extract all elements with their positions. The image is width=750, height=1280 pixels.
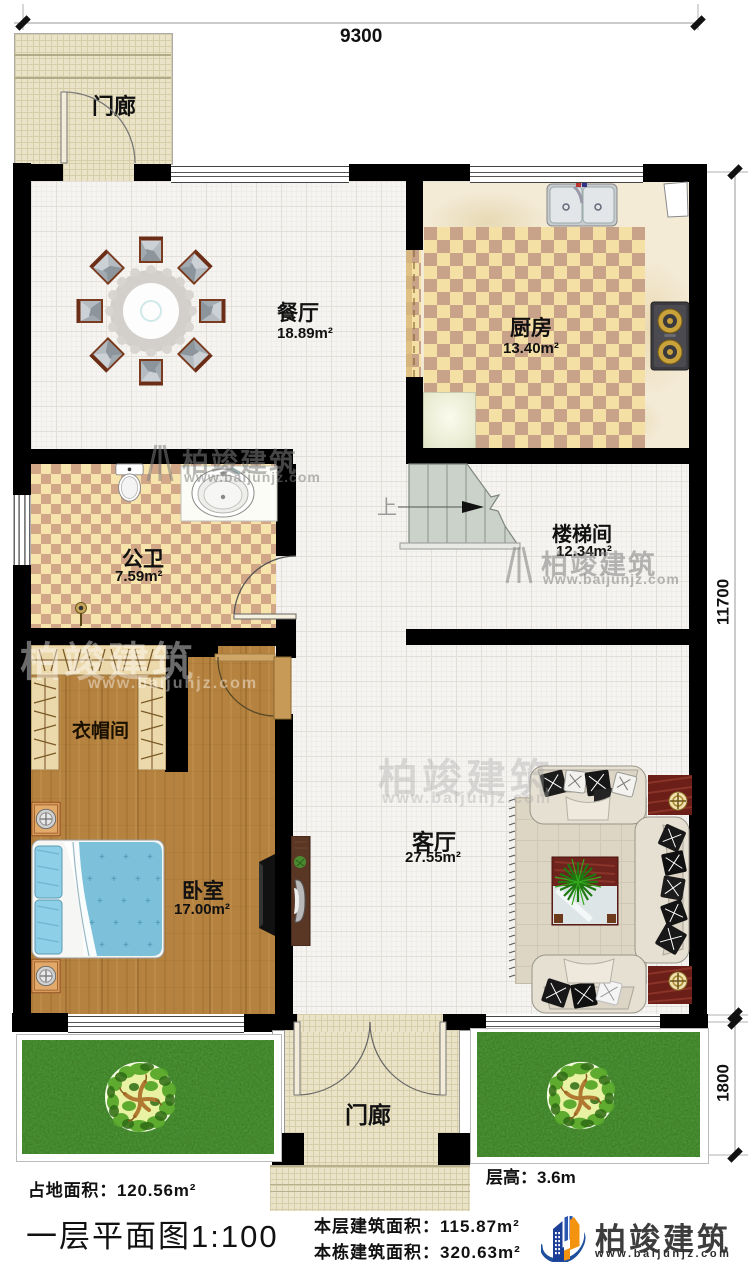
svg-text:1800: 1800	[714, 1064, 733, 1102]
svg-text:+: +	[135, 874, 141, 885]
svg-text:+: +	[147, 852, 153, 863]
svg-text:11700: 11700	[714, 579, 733, 625]
svg-text:上: 上	[377, 496, 397, 519]
svg-text:+: +	[147, 940, 153, 951]
svg-text:+: +	[121, 896, 127, 907]
svg-text:+: +	[155, 874, 161, 885]
svg-text:+: +	[89, 918, 95, 929]
svg-text:+: +	[137, 918, 143, 929]
svg-text:+: +	[111, 874, 117, 885]
svg-text:+: +	[99, 852, 105, 863]
svg-text:+: +	[87, 874, 93, 885]
svg-text:+: +	[99, 940, 105, 951]
svg-text:+: +	[145, 896, 151, 907]
svg-text:+: +	[123, 940, 129, 951]
svg-text:+: +	[123, 852, 129, 863]
svg-text:+: +	[97, 896, 103, 907]
svg-text:+: +	[113, 918, 119, 929]
svg-text:+: +	[155, 918, 161, 929]
